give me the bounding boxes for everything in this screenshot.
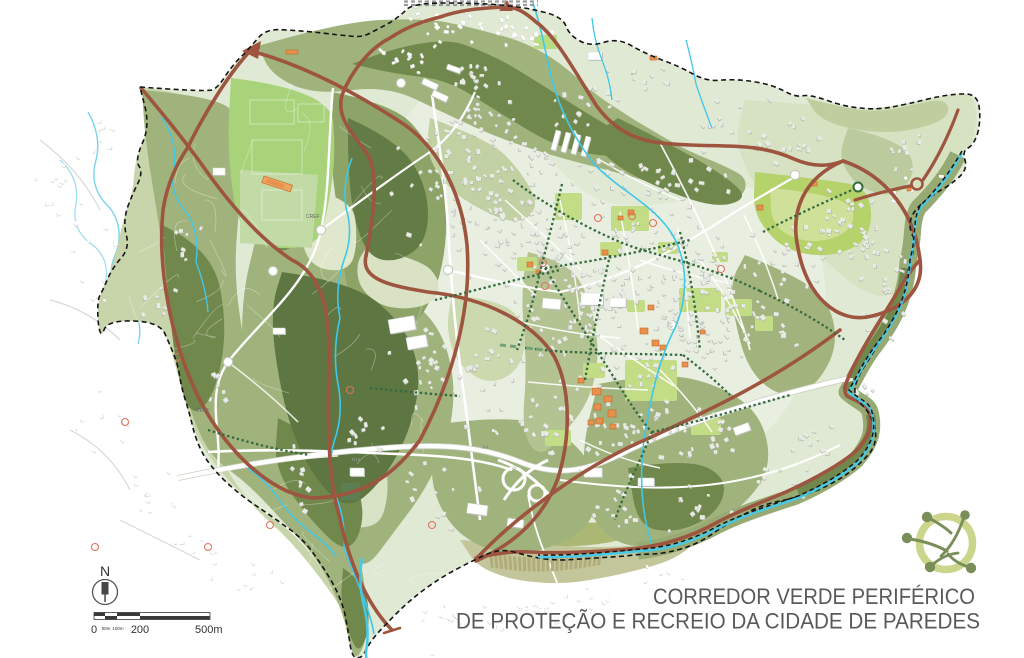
svg-text:500m: 500m: [195, 624, 223, 636]
svg-text:DE PROTEÇÃO E RECREIO DA CIDAD: DE PROTEÇÃO E RECREIO DA CIDADE DE PARED…: [456, 609, 980, 634]
svg-text:CREF: CREF: [196, 408, 210, 414]
svg-text:0: 0: [91, 624, 97, 636]
svg-text:100m: 100m: [112, 626, 124, 631]
svg-text:CREF: CREF: [306, 214, 320, 220]
svg-text:CORREDOR VERDE PERIFÉRICO: CORREDOR VERDE PERIFÉRICO: [653, 584, 975, 609]
svg-text:50m: 50m: [102, 626, 111, 631]
svg-text:N: N: [100, 563, 110, 579]
svg-text:A4: A4: [482, 445, 488, 451]
svg-text:200: 200: [131, 624, 149, 636]
svg-text:N15: N15: [352, 457, 361, 462]
